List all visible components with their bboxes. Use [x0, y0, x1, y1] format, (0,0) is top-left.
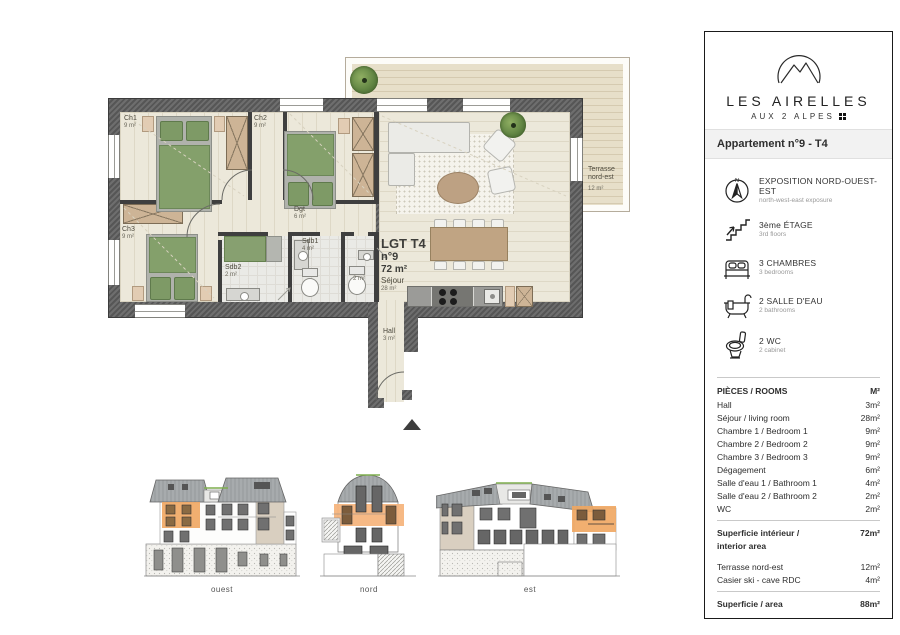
- label-ch2: Ch29 m²: [254, 115, 267, 130]
- rooms-header-value: M²: [870, 384, 880, 399]
- bed-icon: [715, 252, 759, 282]
- total-label: Superficie / area: [717, 598, 783, 611]
- elevation-west-label: ouest: [138, 585, 306, 594]
- table-row: Séjour / living room28m²: [717, 412, 880, 425]
- rooms-header-label: PIÈCES / ROOMS: [717, 384, 787, 399]
- info-panel: LES AIRELLES AUX 2 ALPES Appartement n°9…: [704, 31, 893, 619]
- elevation-north-drawing: [316, 468, 422, 584]
- feature-label: 3 CHAMBRES: [759, 258, 880, 268]
- extra-row: Terrasse nord-est12m²: [717, 561, 880, 574]
- table-row: WC2m²: [717, 503, 880, 516]
- unit-room: Séjour: [381, 276, 451, 286]
- table-row: Hall3m²: [717, 399, 880, 412]
- feature-label: EXPOSITION NORD-OUEST-EST: [759, 176, 880, 196]
- stairs-icon: [715, 213, 759, 245]
- unit-title: LGT T4 n°9 72 m² Séjour 28 m²: [381, 237, 451, 293]
- table-row: Dégagement6m²: [717, 464, 880, 477]
- feature-bedrooms: 3 CHAMBRES 3 bedrooms: [715, 252, 880, 282]
- elevation-west-drawing: [138, 472, 306, 584]
- feature-sublabel: north-west-east exposure: [759, 197, 880, 204]
- table-row: Chambre 2 / Bedroom 29m²: [717, 438, 880, 451]
- elevation-east-label: est: [436, 585, 624, 594]
- unit-id: LGT T4: [381, 237, 451, 251]
- feature-exposure: N EXPOSITION NORD-OUEST-EST north-west-e…: [715, 174, 880, 206]
- features-list: N EXPOSITION NORD-OUEST-EST north-west-e…: [705, 159, 892, 373]
- total-row: Superficie / area 88m²: [717, 598, 880, 611]
- brand-name: LES AIRELLES: [705, 93, 892, 109]
- feature-floor: 3ème ÉTAGE 3rd floors: [715, 213, 880, 245]
- table-row: Salle d'eau 1 / Bathroom 14m²: [717, 477, 880, 490]
- brand-subtitle: AUX 2 ALPES: [751, 112, 835, 121]
- subtotal-label-line1: Superficie intérieur /: [717, 527, 799, 540]
- feature-sublabel: 3 bedrooms: [759, 269, 880, 276]
- feature-label: 3ème ÉTAGE: [759, 220, 880, 230]
- north-arrow: [403, 419, 421, 430]
- toilet-icon: [715, 328, 759, 362]
- label-wc: 2 m²: [353, 276, 365, 283]
- svg-text:N: N: [735, 178, 739, 184]
- rooms-table-header: PIÈCES / ROOMS M²: [717, 384, 880, 399]
- feature-sublabel: 2 bathrooms: [759, 307, 880, 314]
- feature-wc: 2 WC 2 cabinet: [715, 328, 880, 362]
- divider: [717, 377, 880, 378]
- feature-label: 2 WC: [759, 336, 880, 346]
- table-row: Salle d'eau 2 / Bathroom 22m²: [717, 490, 880, 503]
- subtotal-row: Superficie intérieur / interior area 72m…: [717, 527, 880, 553]
- divider: [717, 520, 880, 521]
- table-row: Chambre 3 / Bedroom 39m²: [717, 451, 880, 464]
- feature-label: 2 SALLE D'EAU: [759, 296, 880, 306]
- elevation-east-drawing: [436, 472, 624, 584]
- label-ch1: Ch19 m²: [124, 115, 137, 130]
- feature-bathrooms: 2 SALLE D'EAU 2 bathrooms: [715, 289, 880, 321]
- table-row: Chambre 1 / Bedroom 19m²: [717, 425, 880, 438]
- feature-sublabel: 3rd floors: [759, 231, 880, 238]
- unit-area: 72 m²: [381, 264, 451, 276]
- subtotal-block: Superficie intérieur / interior area 72m…: [705, 525, 892, 587]
- elevation-north-label: nord: [316, 585, 422, 594]
- rooms-table: PIÈCES / ROOMS M² Hall3m² Séjour / livin…: [705, 382, 892, 516]
- feature-sublabel: 2 cabinet: [759, 347, 880, 354]
- subtotal-value: 72m²: [860, 527, 880, 553]
- label-hall: Hall3 m²: [383, 328, 395, 343]
- total-block: Superficie / area 88m²: [705, 596, 892, 621]
- extra-row: Casier ski - cave RDC4m²: [717, 574, 880, 587]
- brand-block: LES AIRELLES AUX 2 ALPES: [705, 32, 892, 121]
- label-sdb1: Sdb14 m²: [302, 238, 318, 253]
- compass-icon: N: [715, 174, 759, 206]
- total-value: 88m²: [860, 598, 880, 611]
- label-ch3: Ch39 m²: [122, 226, 135, 241]
- unit-room-area: 28 m²: [381, 286, 451, 293]
- label-dgt: Dgt6 m²: [294, 206, 306, 221]
- brand-subtitle-row: AUX 2 ALPES: [705, 112, 892, 121]
- label-sdb2: Sdb22 m²: [225, 264, 241, 279]
- unit-number: n°9: [381, 251, 451, 264]
- subtotal-label-line2: interior area: [717, 540, 799, 553]
- brochure-page: Terrasse nord-est 12 m²: [0, 0, 900, 635]
- four-squares-icon: [839, 113, 846, 120]
- apartment-title: Appartement n°9 - T4: [705, 129, 892, 159]
- divider: [717, 591, 880, 592]
- mountain-logo-icon: [767, 42, 831, 86]
- bathtub-icon: [715, 289, 759, 321]
